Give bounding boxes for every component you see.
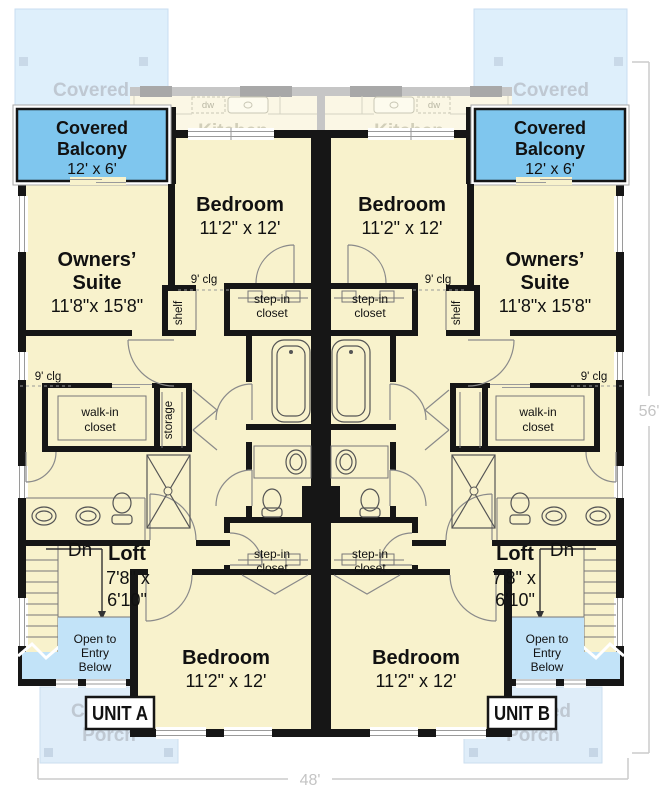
unit-a-tag: UNIT A [86, 697, 154, 729]
covered-patio-label-right: Covered [513, 80, 589, 101]
bedroom-label: Bedroom [196, 194, 284, 216]
balcony-door [70, 177, 126, 185]
step-in-closet-label: step-in [352, 292, 388, 306]
balcony-label-left: Balcony [57, 139, 127, 159]
ghost-kitchen-window [240, 86, 292, 97]
floor-plan-page: Covered Patio Covered Patio Kitchen Kitc… [0, 0, 669, 800]
step-in-closet-label: step-in [254, 292, 290, 306]
porch-post [44, 748, 53, 757]
walk-in-closet-label-left: walk-in [80, 405, 118, 419]
walk-in-closet-label-right: walk-in [518, 405, 556, 419]
loft-dims-left: 6'10" [107, 590, 147, 610]
center-chase [302, 486, 340, 522]
ghost-kitchen-sink [228, 97, 268, 113]
ceiling-height-label: 9' clg [35, 371, 62, 383]
storage-label-left: storage [163, 401, 175, 439]
balcony-label-right: Balcony [515, 139, 585, 159]
owners-suite-dims-left: 11'8"x 15'8" [51, 296, 143, 316]
loft-dims-left: 7'8" x [106, 568, 150, 588]
balcony-dims-left: 12' x 6' [67, 161, 117, 178]
ghost-kitchen-party-wall [317, 87, 325, 132]
step-in-closet-label: step-in [254, 547, 290, 561]
loft-label-right: Loft [496, 543, 534, 565]
depth-dimension: 56' [639, 403, 660, 420]
loft-dims-right: 6'10" [495, 590, 535, 610]
down-label-right: Dn [550, 540, 574, 561]
balcony-dims-right: 12' x 6' [525, 161, 575, 178]
step-in-closet-label: closet [354, 306, 386, 320]
ceiling-height-label: 9' clg [191, 274, 218, 286]
loft-dims-right: 7'8" x [492, 568, 536, 588]
patio-post [139, 57, 148, 66]
shelf-label-left: shelf [173, 300, 185, 325]
open-to-entry-label-right: Entry [533, 646, 561, 660]
step-in-closet-label: closet [256, 306, 288, 320]
unit-a-label: UNIT A [92, 703, 148, 725]
open-to-entry-label-right: Below [531, 660, 564, 674]
party-wall [311, 130, 321, 737]
step-in-closet-label: step-in [352, 547, 388, 561]
bedroom-dims: 11'2" x 12' [186, 671, 267, 691]
dishwasher-label-left: dw [202, 100, 214, 111]
bedroom-dims: 11'2" x 12' [376, 671, 457, 691]
covered-patio-label-left: Covered [53, 80, 129, 101]
owners-suite-label-right: Owners’ [506, 249, 585, 271]
step-in-closet-label: closet [256, 561, 288, 575]
down-label-left: Dn [68, 540, 92, 561]
ceiling-height-label: 9' clg [425, 274, 452, 286]
floor-plan-drawing: Covered Patio Covered Patio Kitchen Kitc… [0, 0, 669, 800]
open-to-entry-label-left: Below [79, 660, 112, 674]
unit-b-tag: UNIT B [488, 697, 556, 729]
ghost-kitchen-window [140, 86, 172, 97]
bedroom-label: Bedroom [372, 647, 460, 669]
dishwasher-label-right: dw [428, 100, 440, 111]
walk-in-closet-label-left: closet [84, 420, 116, 434]
open-to-entry-label-right: Open to [526, 632, 569, 646]
balcony-label-right: Covered [514, 118, 586, 138]
walk-in-closet-label-right: closet [522, 420, 554, 434]
bedroom-label: Bedroom [358, 194, 446, 216]
open-to-entry-label-left: Open to [74, 632, 117, 646]
owners-suite-label-left: Suite [73, 272, 122, 294]
owners-suite-dims-right: 11'8"x 15'8" [499, 296, 591, 316]
bedroom-dims: 11'2" x 12' [362, 218, 443, 238]
open-to-entry-label-left: Entry [81, 646, 109, 660]
step-in-closet-label: closet [354, 561, 386, 575]
porch-post [164, 748, 173, 757]
width-dimension: 48' [300, 772, 321, 789]
bedroom-label: Bedroom [182, 647, 270, 669]
owners-suite-label-right: Suite [521, 272, 570, 294]
shelf-label-right: shelf [451, 300, 463, 325]
patio-post [19, 57, 28, 66]
owners-suite-label-left: Owners’ [58, 249, 137, 271]
balcony-label-left: Covered [56, 118, 128, 138]
unit-b-label: UNIT B [494, 703, 550, 725]
ceiling-height-label: 9' clg [581, 371, 608, 383]
bedroom-dims: 11'2" x 12' [200, 218, 281, 238]
loft-label-left: Loft [108, 543, 146, 565]
